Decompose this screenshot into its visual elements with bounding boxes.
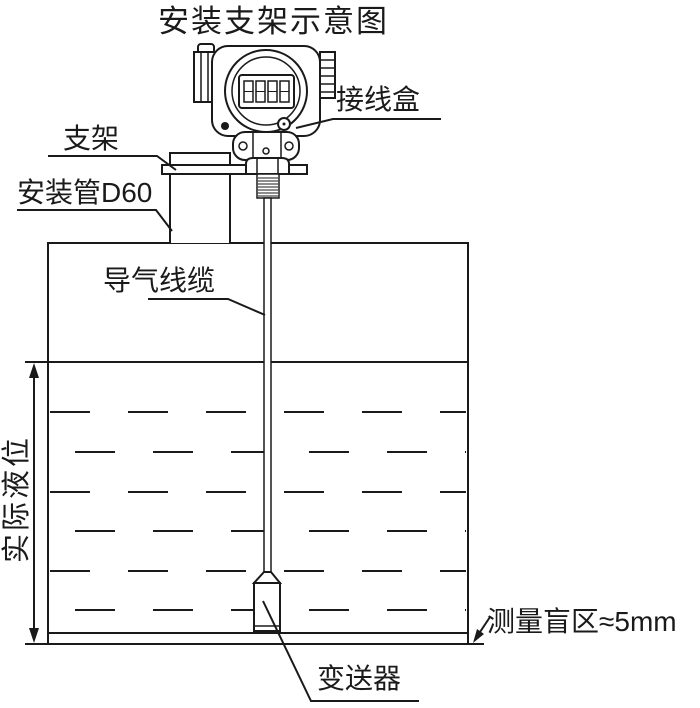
- label-bracket: 支架: [63, 123, 119, 155]
- diagram-title: 安装支架示意图: [158, 4, 389, 40]
- heat-fins-icon: [320, 52, 335, 98]
- hex-nut: [246, 158, 289, 174]
- bracket-leader: [48, 156, 176, 170]
- mounting-pipe-leader: [17, 210, 172, 231]
- threaded-connection: [257, 174, 279, 198]
- probe-transmitter: [254, 572, 280, 631]
- label-blind-zone: 测量盲区≈5mm: [487, 606, 677, 638]
- label-mounting-pipe: 安装管D60: [17, 177, 152, 209]
- lcd-display-icon: [239, 75, 294, 108]
- label-actual-level: 实际液位: [1, 433, 33, 565]
- head-neck-flange: [233, 132, 299, 160]
- screw-center-dot: [283, 123, 286, 126]
- label-transmitter: 变送器: [317, 663, 401, 695]
- screw-icon: [221, 122, 229, 130]
- label-junction-box: 接线盒: [336, 84, 420, 116]
- label-air-cable: 导气线缆: [103, 265, 215, 297]
- air-cable-leader: [148, 299, 265, 315]
- diagram-canvas: 安装支架示意图 接线盒 支架 安装管D60 导气线缆 实际液位 测量盲区≈5mm…: [0, 0, 700, 708]
- air-guide-cable: [264, 198, 271, 572]
